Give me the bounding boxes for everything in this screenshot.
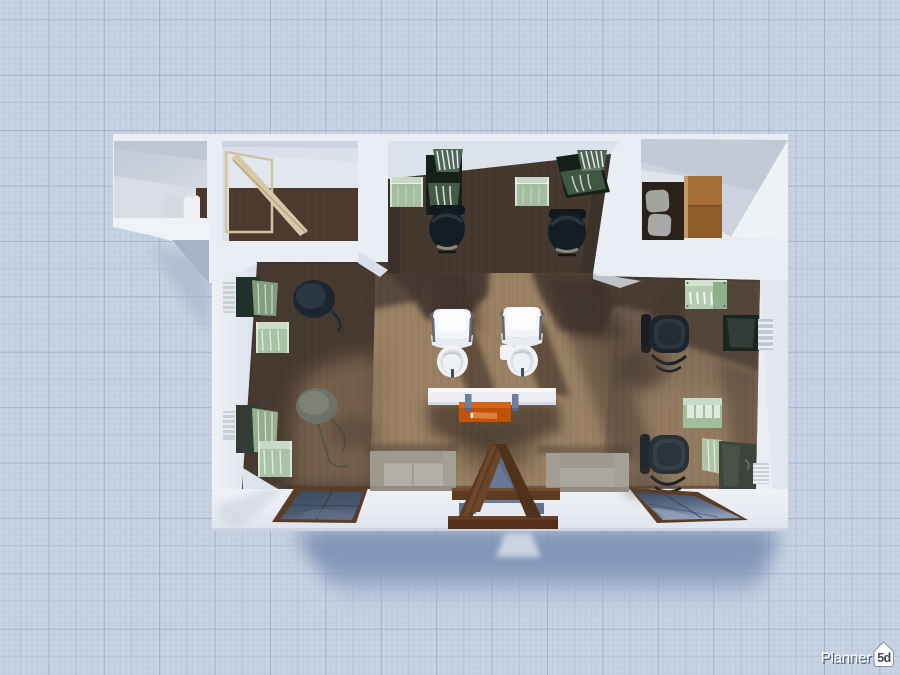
- svg-text:Planner: Planner: [821, 650, 872, 667]
- svg-text:5d: 5d: [877, 651, 891, 665]
